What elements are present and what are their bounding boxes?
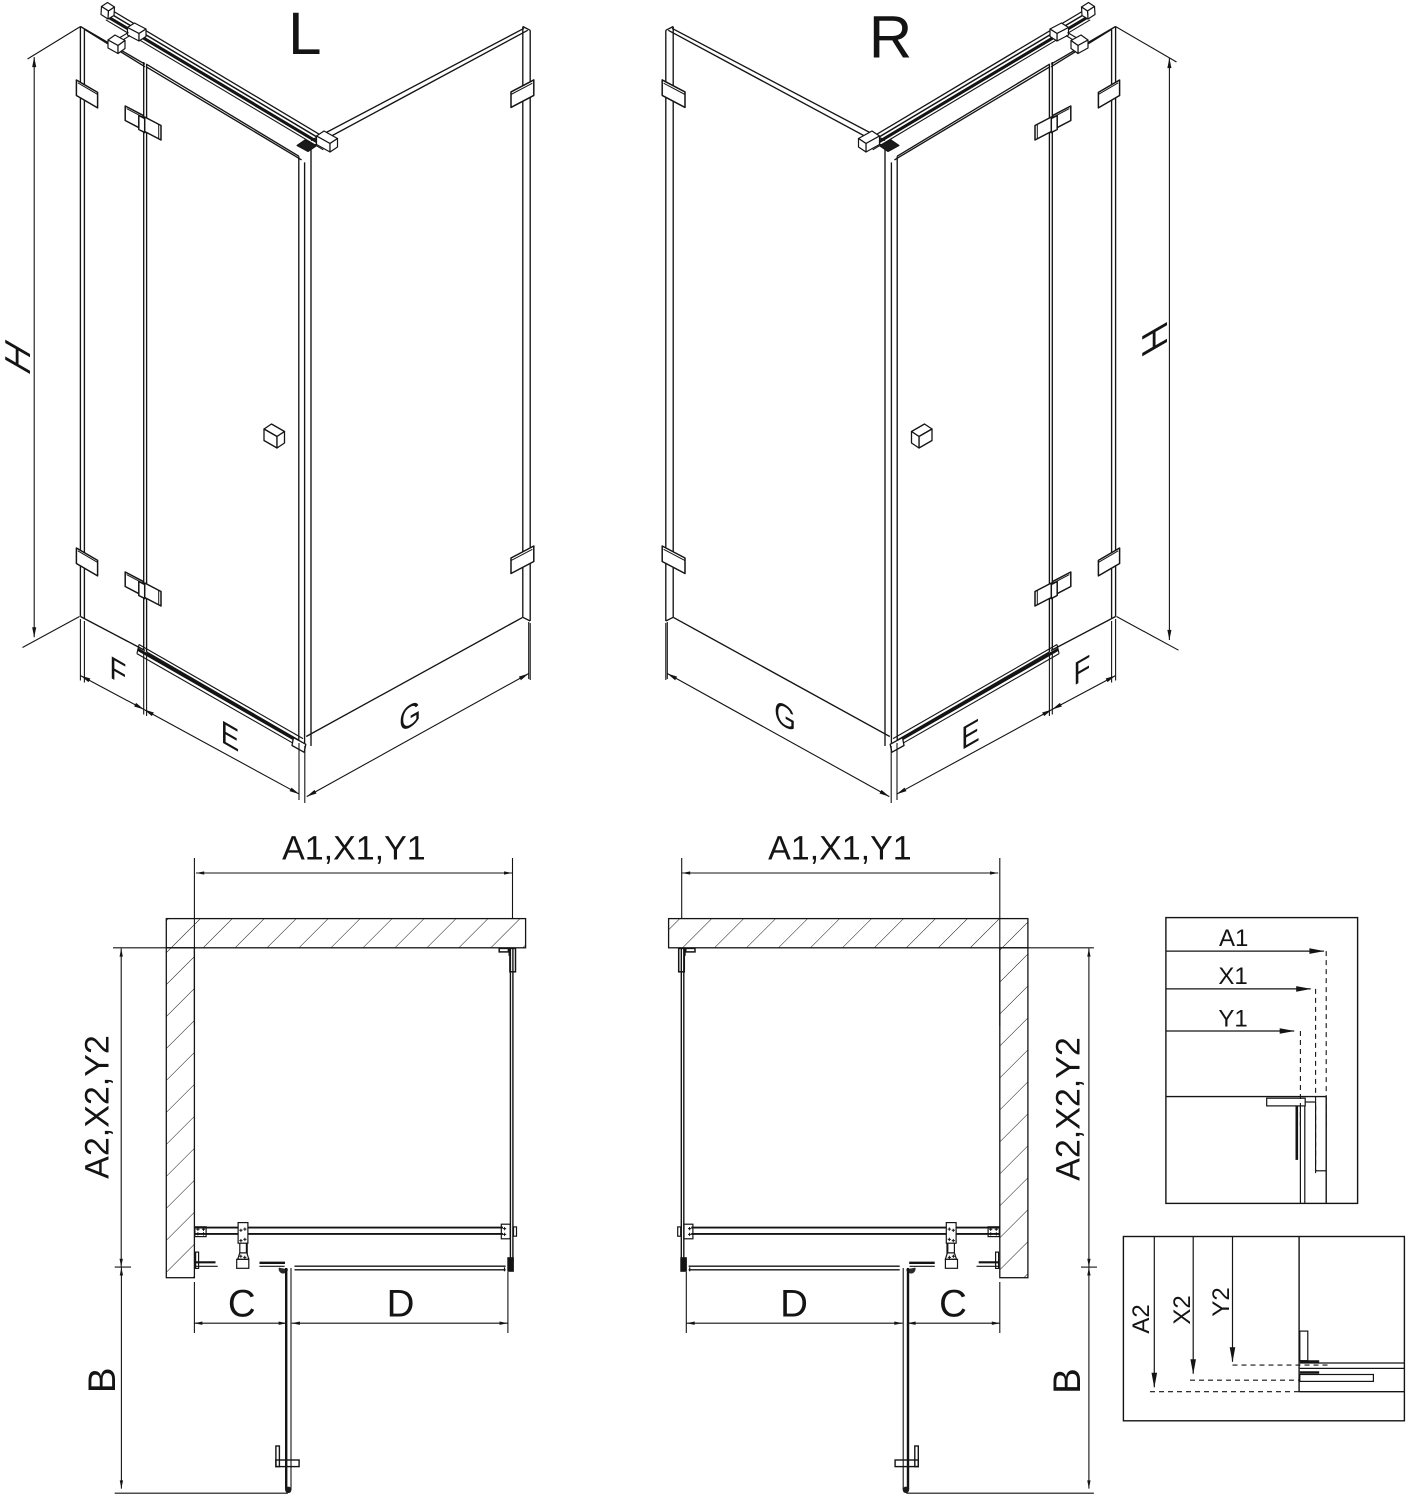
svg-text:A2,X2,Y2: A2,X2,Y2: [79, 1035, 117, 1179]
svg-text:R: R: [869, 3, 912, 70]
svg-text:A1: A1: [1219, 925, 1248, 952]
svg-text:X2: X2: [1169, 1295, 1196, 1324]
svg-text:B: B: [81, 1367, 124, 1393]
svg-text:Y2: Y2: [1208, 1287, 1235, 1316]
svg-text:L: L: [288, 0, 321, 67]
svg-text:A1,X1,Y1: A1,X1,Y1: [768, 829, 912, 867]
svg-text:B: B: [1046, 1368, 1089, 1394]
svg-text:A2: A2: [1128, 1304, 1155, 1333]
svg-text:Y1: Y1: [1218, 1005, 1247, 1032]
svg-text:D: D: [780, 1283, 808, 1326]
svg-text:D: D: [387, 1283, 415, 1326]
svg-text:A1,X1,Y1: A1,X1,Y1: [282, 829, 426, 867]
svg-text:C: C: [939, 1283, 967, 1326]
svg-text:A2,X2,Y2: A2,X2,Y2: [1050, 1037, 1088, 1181]
svg-text:C: C: [228, 1283, 256, 1326]
svg-text:X1: X1: [1218, 963, 1247, 990]
